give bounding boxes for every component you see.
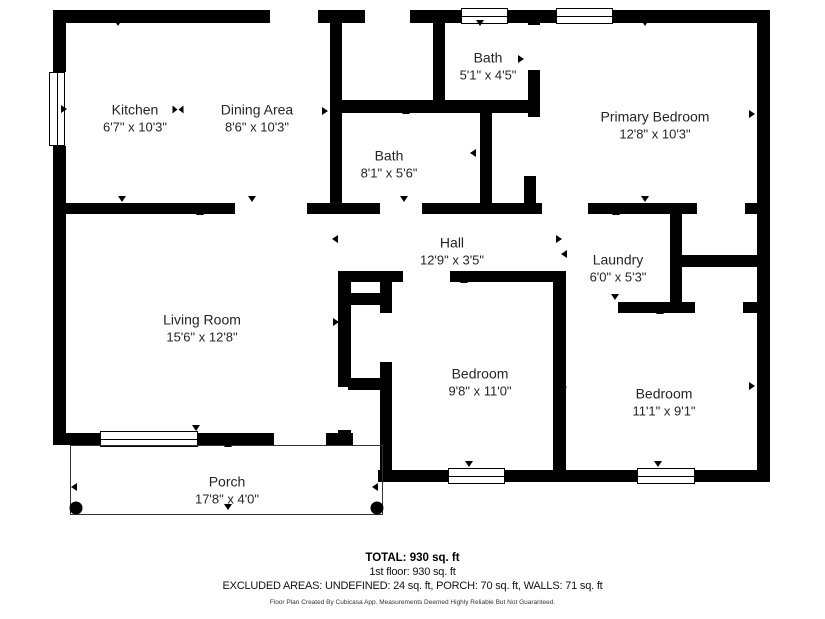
window-glass-line (101, 439, 197, 440)
window (448, 468, 505, 484)
door-arrow-icon (465, 461, 473, 467)
door-arrow-icon (372, 483, 378, 491)
wall (53, 10, 270, 23)
door-arrow-icon (332, 235, 338, 243)
porch-post (371, 502, 384, 515)
wall (65, 203, 235, 214)
wall (743, 302, 770, 313)
door-arrow-icon (322, 107, 328, 115)
room-label: Dining Area8'6" x 10'3" (221, 101, 293, 136)
door-arrow-icon (561, 250, 567, 258)
door-arrow-icon (118, 196, 126, 202)
wall (553, 271, 566, 482)
window-glass-line (557, 16, 612, 17)
wall (348, 378, 380, 390)
room-name: Bedroom (448, 365, 511, 383)
wall (198, 433, 274, 445)
wall (757, 10, 770, 482)
wall (380, 271, 392, 313)
door-arrow-icon (385, 370, 391, 378)
room-label: Bedroom11'1" x 9'1" (632, 385, 695, 420)
room-name: Laundry (590, 251, 647, 269)
window-glass-line (449, 476, 504, 477)
window (556, 8, 613, 24)
room-label: Living Room15'6" x 12'8" (163, 311, 241, 346)
door-arrow-icon (641, 196, 649, 202)
area-summary: TOTAL: 930 sq. ft 1st floor: 930 sq. ft … (0, 551, 825, 607)
room-dimensions: 6'0" x 5'3" (590, 269, 647, 286)
door-arrow-icon (611, 294, 619, 300)
room-dimensions: 5'1" x 4'5" (460, 67, 517, 84)
door-arrow-icon (224, 441, 232, 447)
door-arrow-icon (749, 382, 755, 390)
door-arrow-icon (196, 209, 204, 215)
wall (348, 293, 380, 305)
room-dimensions: 6'7" x 10'3" (103, 119, 167, 136)
room-name: Kitchen (103, 101, 167, 119)
door-arrow-icon (518, 55, 524, 63)
door-swing-icon (173, 106, 184, 115)
door-arrow-icon (654, 461, 662, 467)
room-name: Bath (460, 49, 517, 67)
room-name: Dining Area (221, 101, 293, 119)
wall (682, 255, 758, 267)
wall (53, 433, 100, 445)
room-dimensions: 8'1" x 5'6" (361, 165, 418, 182)
door-arrow-icon (612, 209, 620, 215)
room-dimensions: 12'8" x 10'3" (601, 126, 710, 143)
door-arrow-icon (333, 318, 339, 326)
wall (307, 203, 380, 214)
wall (338, 271, 351, 387)
room-name: Bath (361, 147, 418, 165)
room-label: Bedroom9'8" x 11'0" (448, 365, 511, 400)
door-arrow-icon (332, 147, 338, 155)
window-glass-line (57, 73, 58, 145)
room-name: Porch (195, 473, 259, 491)
door-arrow-icon (749, 110, 755, 118)
door-arrow-icon (641, 20, 649, 26)
door-arrow-icon (656, 308, 664, 314)
wall (422, 203, 542, 214)
wall (528, 70, 540, 117)
wall (53, 10, 66, 72)
wall (338, 430, 351, 445)
wall (480, 112, 492, 213)
room-dimensions: 11'1" x 9'1" (632, 403, 695, 420)
room-name: Primary Bedroom (601, 108, 710, 126)
door-arrow-icon (470, 149, 476, 157)
room-label: Kitchen6'7" x 10'3" (103, 101, 167, 136)
floorplan-page: Kitchen6'7" x 10'3"Dining Area8'6" x 10'… (0, 0, 825, 619)
door-arrow-icon (400, 196, 408, 202)
room-dimensions: 12'9" x 3'5" (420, 252, 484, 269)
door-arrow-icon (61, 105, 67, 113)
wall (504, 470, 638, 482)
wall (53, 146, 66, 445)
door-arrow-icon (476, 20, 484, 26)
window-glass-line (638, 476, 694, 477)
room-label: Hall12'9" x 3'5" (420, 234, 484, 269)
room-label: Bath5'1" x 4'5" (460, 49, 517, 84)
door-arrow-icon (248, 196, 256, 202)
room-name: Living Room (163, 311, 241, 329)
door-arrow-icon (561, 383, 567, 391)
wall (588, 203, 697, 214)
room-dimensions: 8'6" x 10'3" (221, 119, 293, 136)
room-name: Bedroom (632, 385, 695, 403)
attribution-text: Floor Plan Created By Cubicasa App. Meas… (0, 598, 825, 607)
door-arrow-icon (556, 235, 562, 243)
total-area-text: TOTAL: 930 sq. ft (0, 551, 825, 565)
door-arrow-icon (460, 277, 468, 283)
window (461, 8, 508, 24)
room-label: Primary Bedroom12'8" x 10'3" (601, 108, 710, 143)
excluded-areas-text: EXCLUDED AREAS: UNDEFINED: 24 sq. ft, PO… (0, 579, 825, 593)
room-name: Hall (420, 234, 484, 252)
room-dimensions: 15'6" x 12'8" (163, 329, 241, 346)
window-glass-line (462, 16, 507, 17)
room-label: Porch17'8" x 4'0" (195, 473, 259, 508)
floorplan: Kitchen6'7" x 10'3"Dining Area8'6" x 10'… (0, 0, 825, 540)
door-arrow-icon (192, 425, 200, 431)
door-arrow-icon (71, 483, 77, 491)
wall (528, 10, 540, 25)
room-dimensions: 9'8" x 11'0" (448, 383, 511, 400)
door-arrow-icon (402, 108, 410, 114)
room-dimensions: 17'8" x 4'0" (195, 491, 259, 508)
window (637, 468, 695, 484)
wall (694, 470, 770, 482)
wall (745, 203, 770, 214)
porch-post (70, 502, 83, 515)
room-label: Bath8'1" x 5'6" (361, 147, 418, 182)
door-arrow-icon (114, 20, 122, 26)
first-floor-area-text: 1st floor: 930 sq. ft (0, 565, 825, 579)
wall (330, 100, 540, 113)
wall (670, 214, 682, 312)
room-label: Laundry6'0" x 5'3" (590, 251, 647, 286)
